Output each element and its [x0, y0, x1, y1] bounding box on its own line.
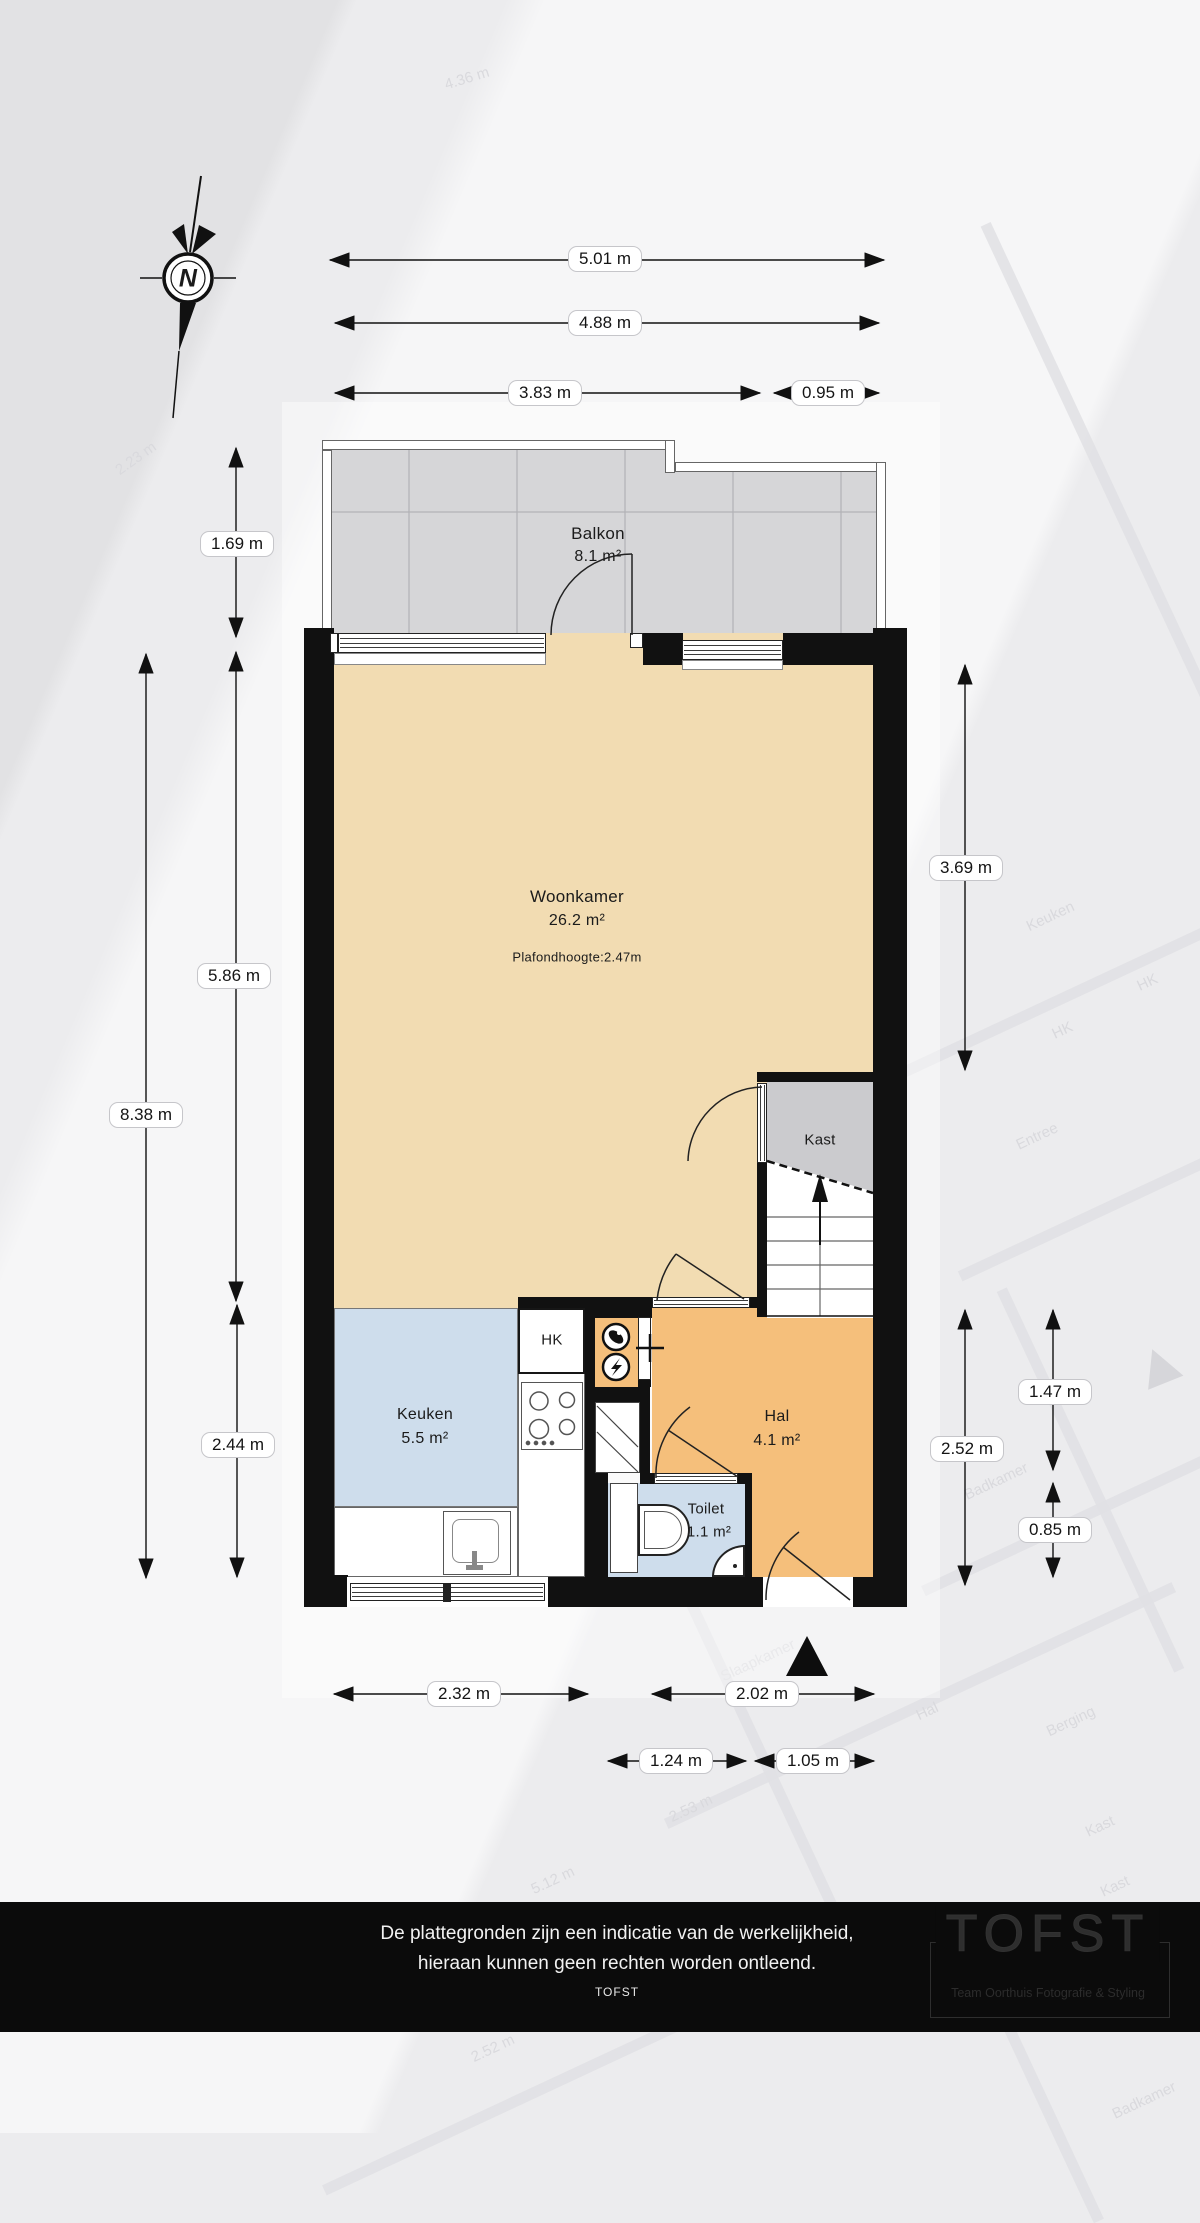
compass-icon [140, 176, 236, 418]
hal-label: Hal [765, 1408, 790, 1426]
dim-top-3: 3.83 m [508, 380, 582, 406]
footer-brand: TOFST [380, 1985, 853, 1999]
dim-bottom-4: 1.05 m [776, 1748, 850, 1774]
woonkamer-label: Woonkamer [530, 887, 624, 907]
dim-left-2: 5.86 m [197, 963, 271, 989]
water-meter-icon [603, 1324, 629, 1350]
hk-label: HK [541, 1332, 562, 1349]
toilet-door-arc [656, 1407, 690, 1478]
front-door-leaf [783, 1547, 850, 1600]
keuken-label: Keuken [397, 1406, 453, 1424]
woonkamer-area: 26.2 m² [549, 912, 605, 930]
dim-bottom-1: 2.32 m [427, 1681, 501, 1707]
dim-left-4: 2.44 m [201, 1432, 275, 1458]
dim-top-4: 0.95 m [791, 380, 865, 406]
dim-right-1: 3.69 m [929, 855, 1003, 881]
toilet-area: 1.1 m² [687, 1524, 731, 1541]
dim-bottom-2: 2.02 m [725, 1681, 799, 1707]
stove-burners [526, 1392, 574, 1445]
hal-area: 4.1 m² [753, 1432, 800, 1450]
dim-top-1: 5.01 m [568, 246, 642, 272]
balkon-area: 8.1 m² [574, 548, 621, 566]
tofst-logo: TOFST [936, 1906, 1160, 1962]
toilet-door-leaf [668, 1430, 738, 1477]
toilet-label: Toilet [688, 1501, 725, 1518]
balcony-door-arc [551, 554, 632, 635]
meter-door-handle [636, 1334, 664, 1362]
kast-label: Kast [804, 1132, 835, 1149]
dim-top-2: 4.88 m [568, 310, 642, 336]
stairs-up-arrow [812, 1174, 828, 1202]
disclaimer-line-1: De plattegronden zijn een indicatie van … [380, 1919, 853, 1949]
electric-meter-icon [603, 1354, 629, 1380]
kast-door-arc [688, 1087, 762, 1161]
hall-door-arc [657, 1254, 676, 1300]
balkon-label: Balkon [571, 524, 625, 544]
floorplan-page: { "compass": { "north": "N" }, "rooms": … [0, 0, 1200, 2133]
hall-door-leaf [676, 1254, 744, 1299]
dim-left-1: 1.69 m [200, 531, 274, 557]
keuken-area: 5.5 m² [401, 1430, 448, 1448]
dim-left-3: 8.38 m [109, 1102, 183, 1128]
tofst-logo-subtitle: Team Oorthuis Fotografie & Styling [951, 1986, 1145, 2000]
disclaimer-line-2: hieraan kunnen geen rechten worden ontle… [380, 1949, 853, 1979]
compass-north-label: N [179, 265, 197, 294]
dim-right-2: 2.52 m [930, 1436, 1004, 1462]
dim-right-4: 0.85 m [1018, 1517, 1092, 1543]
dim-right-3: 1.47 m [1018, 1379, 1092, 1405]
front-door-arc [766, 1532, 799, 1600]
woonkamer-ceiling-height: Plafondhoogte:2.47m [512, 950, 641, 965]
dim-bottom-3: 1.24 m [639, 1748, 713, 1774]
footer-disclaimer: De plattegronden zijn een indicatie van … [380, 1919, 853, 1999]
footer-bar: De plattegronden zijn een indicatie van … [0, 1902, 1200, 2032]
